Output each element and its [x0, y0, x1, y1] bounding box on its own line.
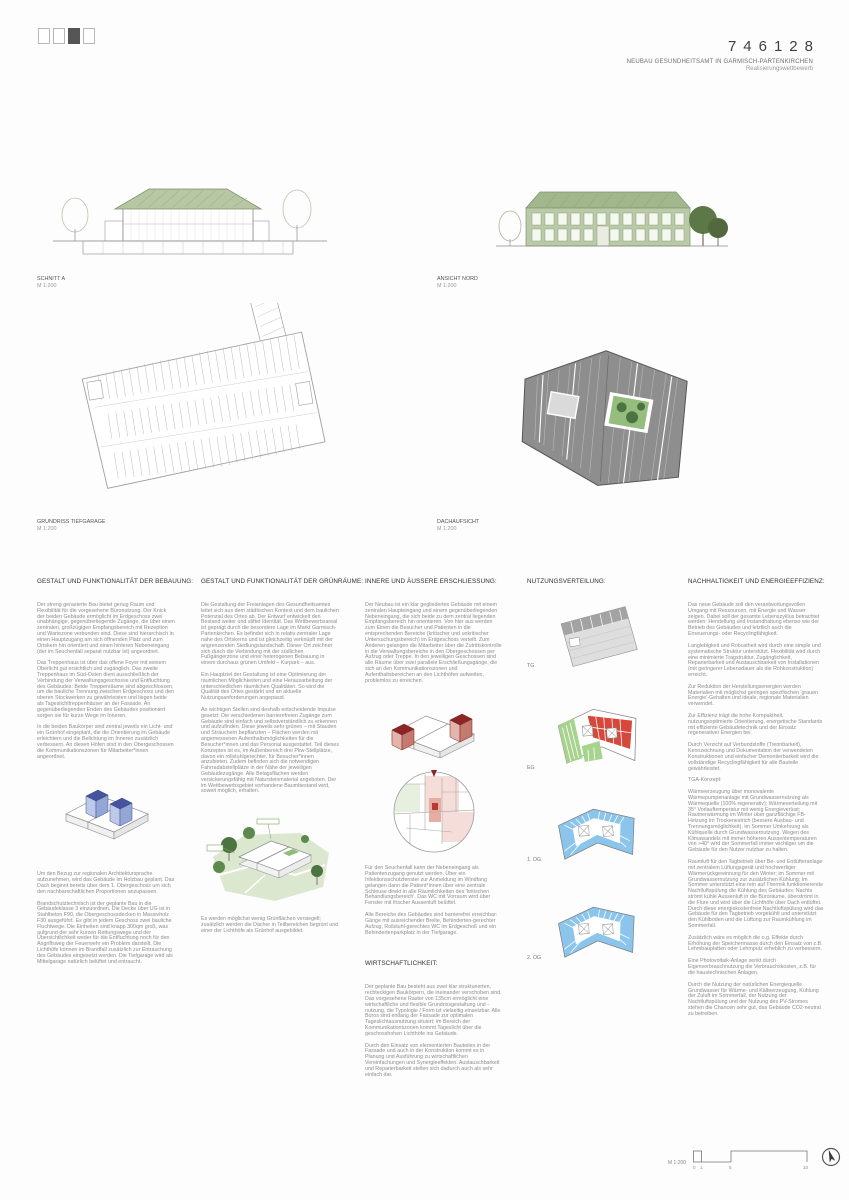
paragraph: Zur Effizienz trägt die hohe Kompaktheit… — [688, 714, 824, 737]
schnitt-a-drawing — [45, 163, 335, 268]
svg-text:5: 5 — [729, 1165, 732, 1170]
plan-label-eg: EG — [527, 765, 535, 771]
green-space-axon-diagram — [201, 805, 339, 905]
ansicht-nord-label: ANSICHT NORD M 1:200 — [437, 276, 478, 291]
sheet-square-2 — [53, 28, 65, 44]
paragraph: Ein Hauptziel der Gestaltung ist eine Op… — [201, 673, 339, 702]
paragraph: Brandschutztechnisch ist der geplante Ba… — [37, 902, 175, 966]
plan-tg: TG — [527, 603, 657, 669]
section-erschliessung: INNERE UND ÄUSSERE ERSCHLIESSUNG: Der Ne… — [365, 578, 503, 1085]
north-arrow-icon — [820, 1146, 842, 1168]
section-nutzung: NUTZUNGSVERTEILUNG: — [527, 578, 657, 991]
courtyard-axon-diagram — [37, 770, 175, 860]
project-title: NEUBAU GESUNDHEITSAMT IN GARMISCH-PARTEN… — [627, 59, 813, 65]
eg-plan-drawing — [549, 699, 649, 771]
plan-og2: 2. OG — [527, 899, 657, 961]
tg-plan-drawing — [549, 603, 644, 669]
paragraph: Wärmeerzeugung über monovalente Wärmepum… — [688, 790, 824, 854]
scale-bar: M 1:200 0 1 5 10 — [668, 1146, 842, 1170]
paragraph: Zur Reduktion der Herstellungsenergien w… — [688, 685, 824, 708]
svg-text:10: 10 — [803, 1165, 809, 1170]
paragraph: Durch die Nutzung der natürlichen Energi… — [688, 983, 824, 1018]
paragraph: Die Gestaltung der Freianlagen des Gesun… — [201, 603, 339, 667]
dachaufsicht-drawing — [490, 323, 715, 513]
paragraph: Der Neubau ist ein klar gegliedertes Geb… — [365, 603, 503, 684]
paragraph: Um den Bezug zur regionalen Architekturs… — [37, 872, 175, 895]
og1-plan-drawing — [549, 801, 644, 863]
entrance-detail-circle-diagram — [365, 770, 503, 854]
paragraph: Zusätzlich wäre es möglich die o.g. Effe… — [688, 936, 824, 953]
paragraph: Der streng gerasterte Bau bietet genug R… — [37, 603, 175, 655]
ansicht-nord-drawing — [490, 168, 735, 268]
bebauung-heading: GESTALT UND FUNKTIONALITÄT DER BEBAUUNG: — [37, 578, 175, 585]
gruenraeume-heading: GESTALT UND FUNKTIONALITÄT DER GRÜNRÄUME… — [201, 578, 339, 585]
wirtschaftlichkeit-heading: WIRTSCHAFTLICHKEIT: — [365, 960, 503, 967]
paragraph: An wichtigen Stellen sind deshalb entsch… — [201, 708, 339, 795]
sheet-indicator — [38, 28, 95, 44]
entry-code: 746128 — [627, 38, 820, 55]
svg-text:1: 1 — [700, 1165, 703, 1170]
section-bebauung: GESTALT UND FUNKTIONALITÄT DER BEBAUUNG:… — [37, 578, 175, 972]
board-header: 746128 NEUBAU GESUNDHEITSAMT IN GARMISCH… — [627, 38, 813, 72]
nachhaltigkeit-heading: NACHHALTIGKEIT UND ENERGIEEFFIZIENZ: — [688, 578, 824, 585]
competition-board: 746128 NEUBAU GESUNDHEITSAMT IN GARMISCH… — [0, 0, 849, 1200]
stair-core-axon-diagram — [365, 694, 503, 758]
paragraph: Eine Photovoltaik-Anlage senkt durch Eig… — [688, 959, 824, 976]
paragraph: Es werden möglichst wenig Grünflächen ve… — [201, 917, 339, 934]
paragraph: Raumluft für den Tagbetrieb über Be- und… — [688, 860, 824, 930]
paragraph: Für den Seuchenfall kann der Nebeneingan… — [365, 866, 503, 907]
sheet-square-3-active — [68, 28, 80, 44]
sheet-square-1 — [38, 28, 50, 44]
project-subtitle: Realisierungswettbewerb — [627, 66, 813, 72]
section-nachhaltigkeit: NACHHALTIGKEIT UND ENERGIEEFFIZIENZ: Das… — [688, 578, 824, 1024]
erschliessung-heading: INNERE UND ÄUSSERE ERSCHLIESSUNG: — [365, 578, 503, 585]
plan-label-tg: TG — [527, 663, 534, 669]
paragraph: Das Treppenhaus ist über das offene Foye… — [37, 661, 175, 719]
tiefgarage-drawing — [45, 303, 355, 518]
plan-label-og1: 1. OG — [527, 857, 541, 863]
section-gruenraeume: GESTALT UND FUNKTIONALITÄT DER GRÜNRÄUME… — [201, 578, 339, 941]
paragraph: In die beiden Baukörper sind zentral jew… — [37, 725, 175, 760]
tiefgarage-label: GRUNDRISS TIEFGARAGE M 1:200 — [37, 519, 106, 534]
sheet-square-4 — [83, 28, 95, 44]
scale-bar-label: M 1:200 — [668, 1160, 686, 1166]
paragraph: TGA-Konzept: — [688, 778, 824, 784]
plan-og1: 1. OG — [527, 801, 657, 863]
paragraph: Durch den Einsatz von elementierten Baut… — [365, 1044, 503, 1079]
scale-bar-graphic: 0 1 5 10 — [693, 1148, 813, 1170]
plan-eg: EG — [527, 699, 657, 771]
schnitt-a-label: SCHNITT A M 1:200 — [37, 276, 65, 291]
paragraph: Alle Bereiche des Gebäudes sind barriere… — [365, 913, 503, 936]
paragraph: Durch Verzicht auf Verbundstoffe (Trennb… — [688, 743, 824, 772]
svg-text:0: 0 — [693, 1165, 696, 1170]
dachaufsicht-label: DACHAUFSICHT M 1:200 — [437, 519, 479, 534]
plan-label-og2: 2. OG — [527, 955, 541, 961]
paragraph: Langlebigkeit und Robustheit wird durch … — [688, 644, 824, 679]
paragraph: Der geplante Bau besteht aus zwei klar s… — [365, 985, 503, 1037]
paragraph: Das neue Gebäude soll den verantwortungs… — [688, 603, 824, 638]
og2-plan-drawing — [549, 899, 644, 961]
nutzung-heading: NUTZUNGSVERTEILUNG: — [527, 578, 657, 585]
